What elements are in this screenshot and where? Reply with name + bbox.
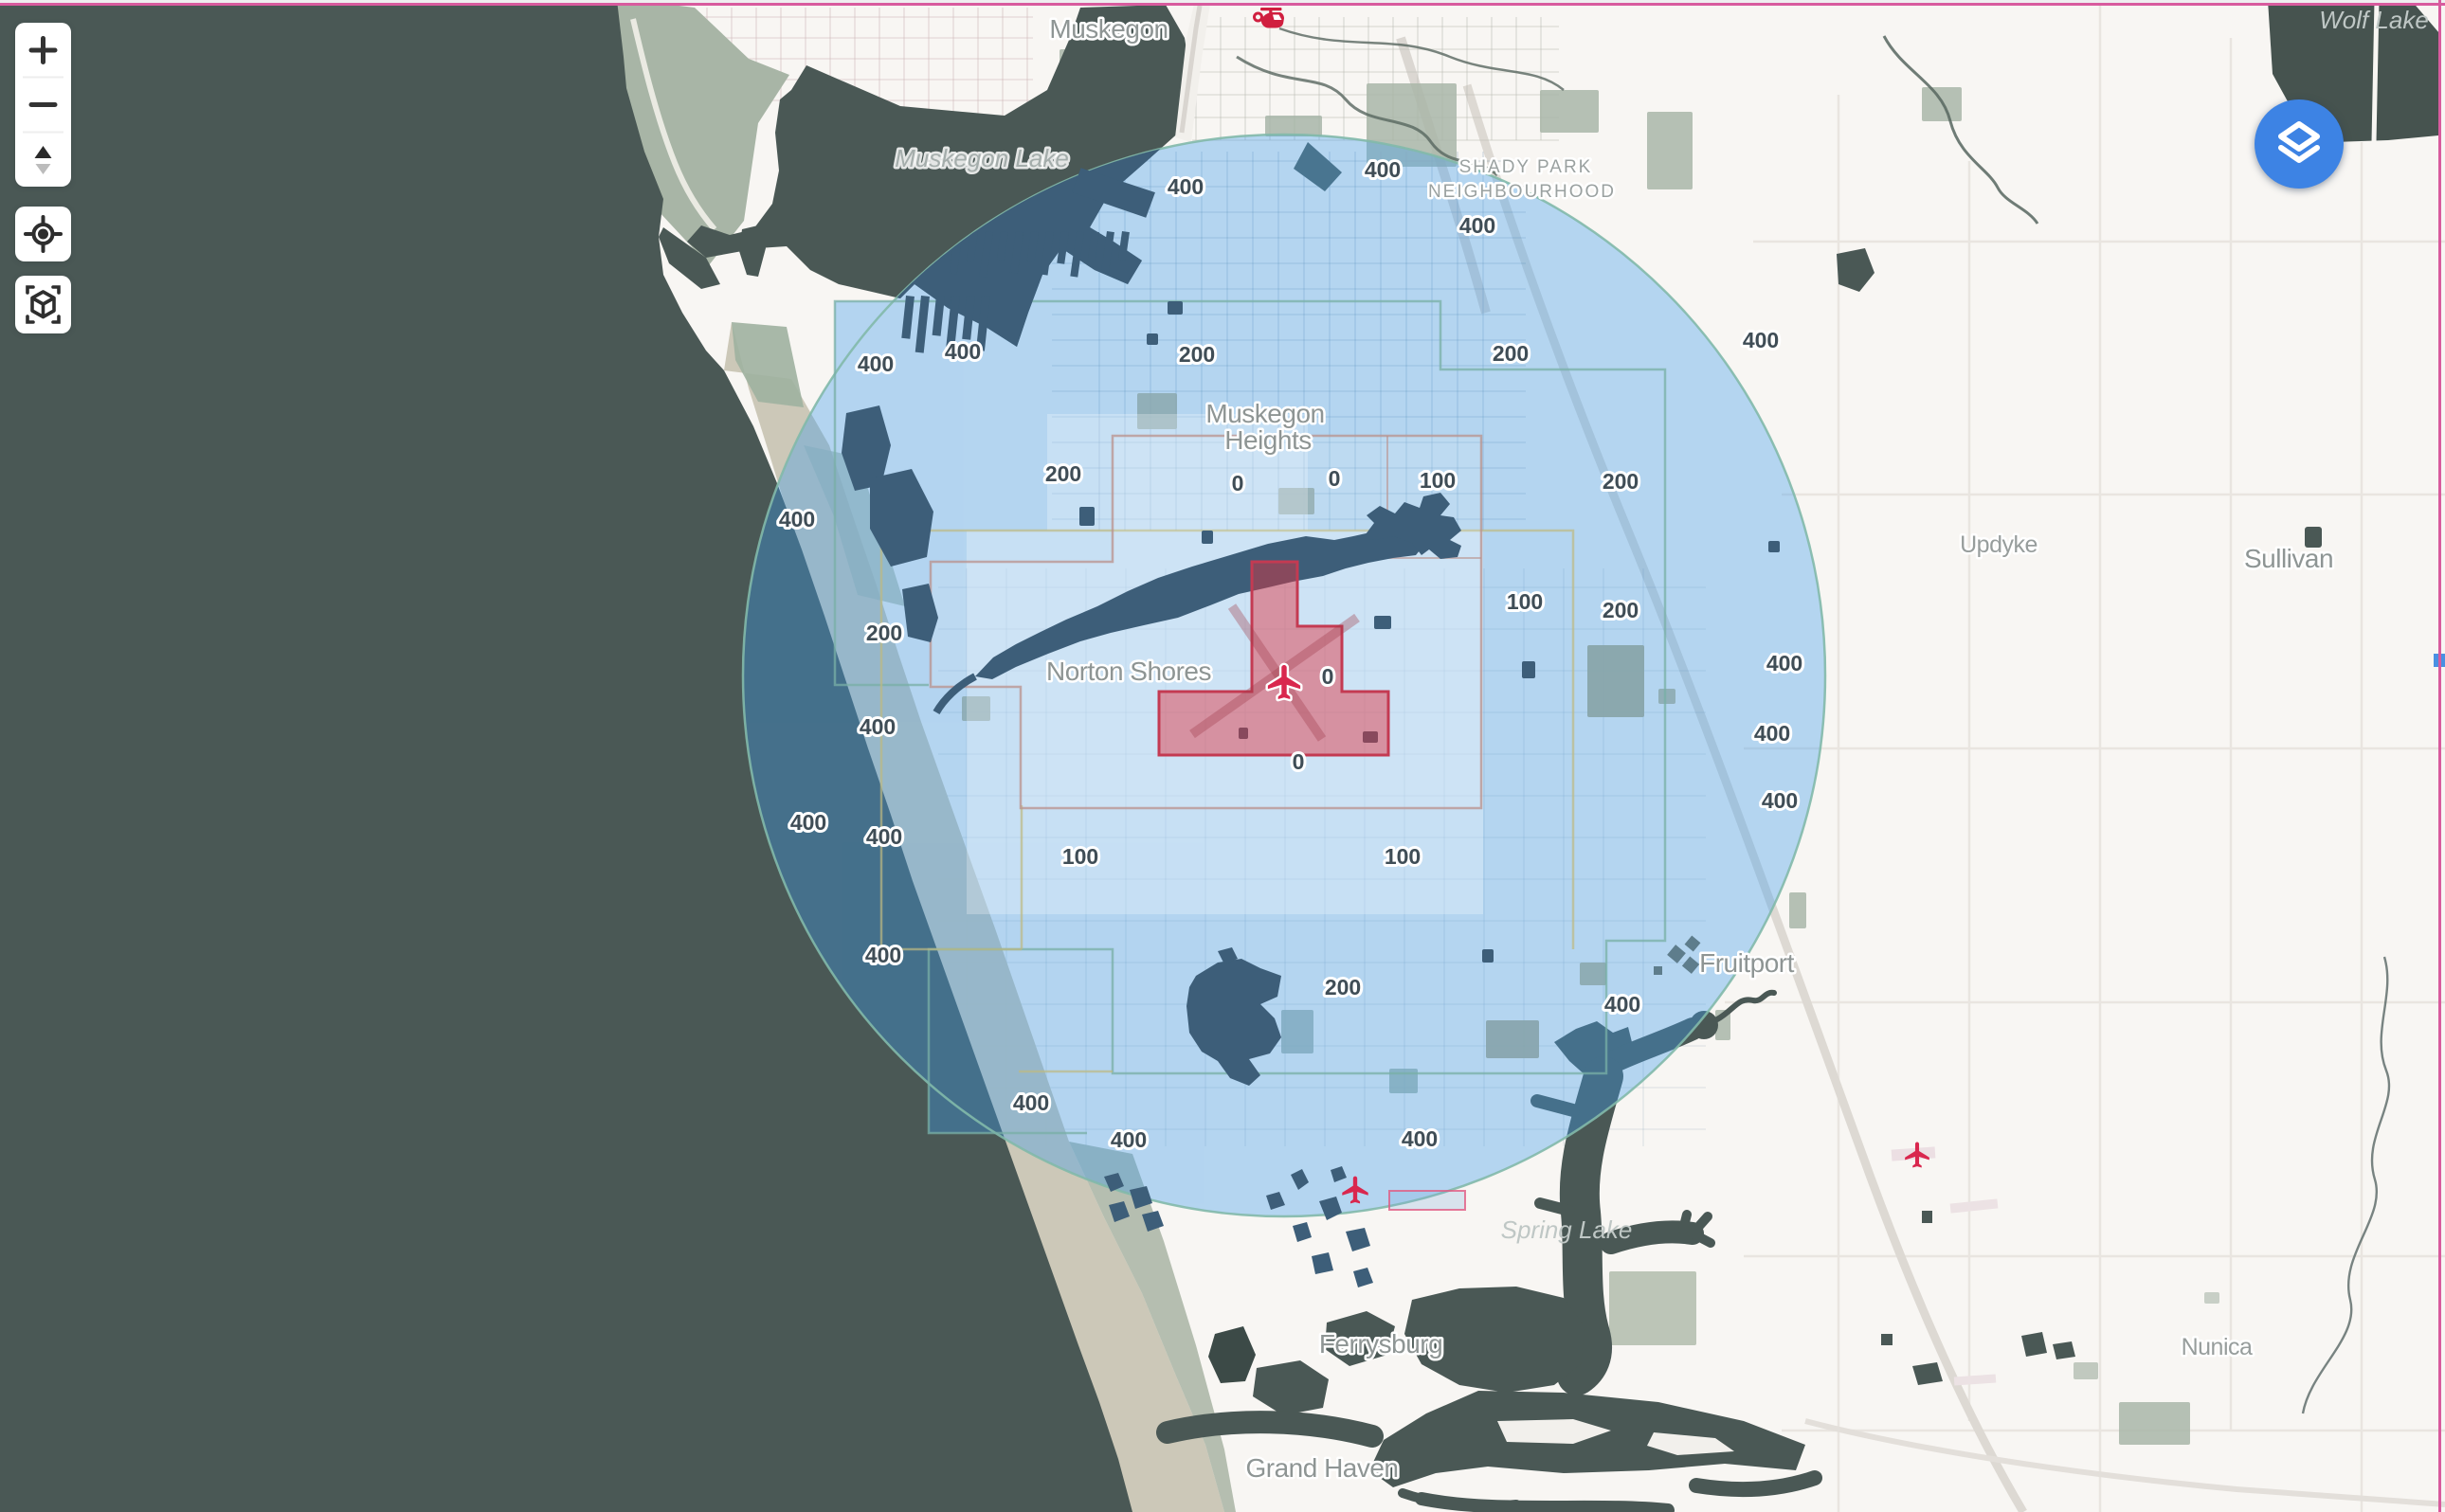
svg-text:200: 200 xyxy=(1045,461,1081,486)
svg-text:Fruitport: Fruitport xyxy=(1699,948,1794,978)
svg-text:400: 400 xyxy=(865,943,901,967)
svg-text:0: 0 xyxy=(1293,749,1305,774)
svg-text:400: 400 xyxy=(1754,721,1790,746)
svg-text:400: 400 xyxy=(866,824,902,849)
svg-text:400: 400 xyxy=(1743,328,1779,352)
svg-text:400: 400 xyxy=(945,339,981,364)
svg-text:400: 400 xyxy=(1013,1090,1049,1115)
svg-text:200: 200 xyxy=(1493,341,1529,366)
svg-text:400: 400 xyxy=(858,351,894,376)
svg-text:400: 400 xyxy=(1762,788,1798,813)
svg-text:400: 400 xyxy=(779,507,815,531)
svg-text:100: 100 xyxy=(1420,468,1456,493)
svg-text:Nunica: Nunica xyxy=(2182,1334,2253,1360)
svg-text:200: 200 xyxy=(1179,342,1215,367)
svg-text:0: 0 xyxy=(1329,466,1341,491)
svg-text:100: 100 xyxy=(1507,589,1543,614)
svg-text:Muskegon: Muskegon xyxy=(1205,399,1324,428)
svg-text:Grand Haven: Grand Haven xyxy=(1245,1453,1398,1483)
svg-text:400: 400 xyxy=(1168,174,1204,199)
svg-text:Ferrysburg: Ferrysburg xyxy=(1319,1329,1442,1359)
svg-text:400: 400 xyxy=(1365,157,1401,182)
svg-text:400: 400 xyxy=(1459,213,1495,238)
svg-text:Norton Shores: Norton Shores xyxy=(1046,657,1211,686)
svg-text:100: 100 xyxy=(1385,844,1421,869)
svg-text:Muskegon: Muskegon xyxy=(1049,14,1168,44)
svg-text:Heights: Heights xyxy=(1224,425,1311,455)
svg-text:100: 100 xyxy=(1062,844,1098,869)
svg-text:200: 200 xyxy=(866,621,902,645)
svg-text:Wolf Lake: Wolf Lake xyxy=(2319,6,2429,34)
svg-text:Sullivan: Sullivan xyxy=(2244,544,2333,573)
svg-text:0: 0 xyxy=(1232,471,1244,495)
svg-text:0: 0 xyxy=(1322,664,1334,689)
svg-text:Muskegon Lake: Muskegon Lake xyxy=(895,144,1069,172)
svg-text:NEIGHBOURHOOD: NEIGHBOURHOOD xyxy=(1428,182,1616,202)
svg-text:200: 200 xyxy=(1325,975,1361,999)
svg-text:Spring Lake: Spring Lake xyxy=(1501,1215,1633,1244)
svg-text:SHADY PARK: SHADY PARK xyxy=(1459,157,1593,177)
svg-text:200: 200 xyxy=(1603,469,1639,494)
svg-text:400: 400 xyxy=(1111,1127,1147,1152)
svg-text:400: 400 xyxy=(790,810,826,835)
svg-text:200: 200 xyxy=(1603,598,1639,622)
svg-text:400: 400 xyxy=(1604,992,1640,1017)
svg-text:400: 400 xyxy=(1402,1126,1438,1151)
svg-text:400: 400 xyxy=(1766,651,1802,675)
svg-text:400: 400 xyxy=(860,714,896,739)
svg-text:Updyke: Updyke xyxy=(1960,531,2037,558)
